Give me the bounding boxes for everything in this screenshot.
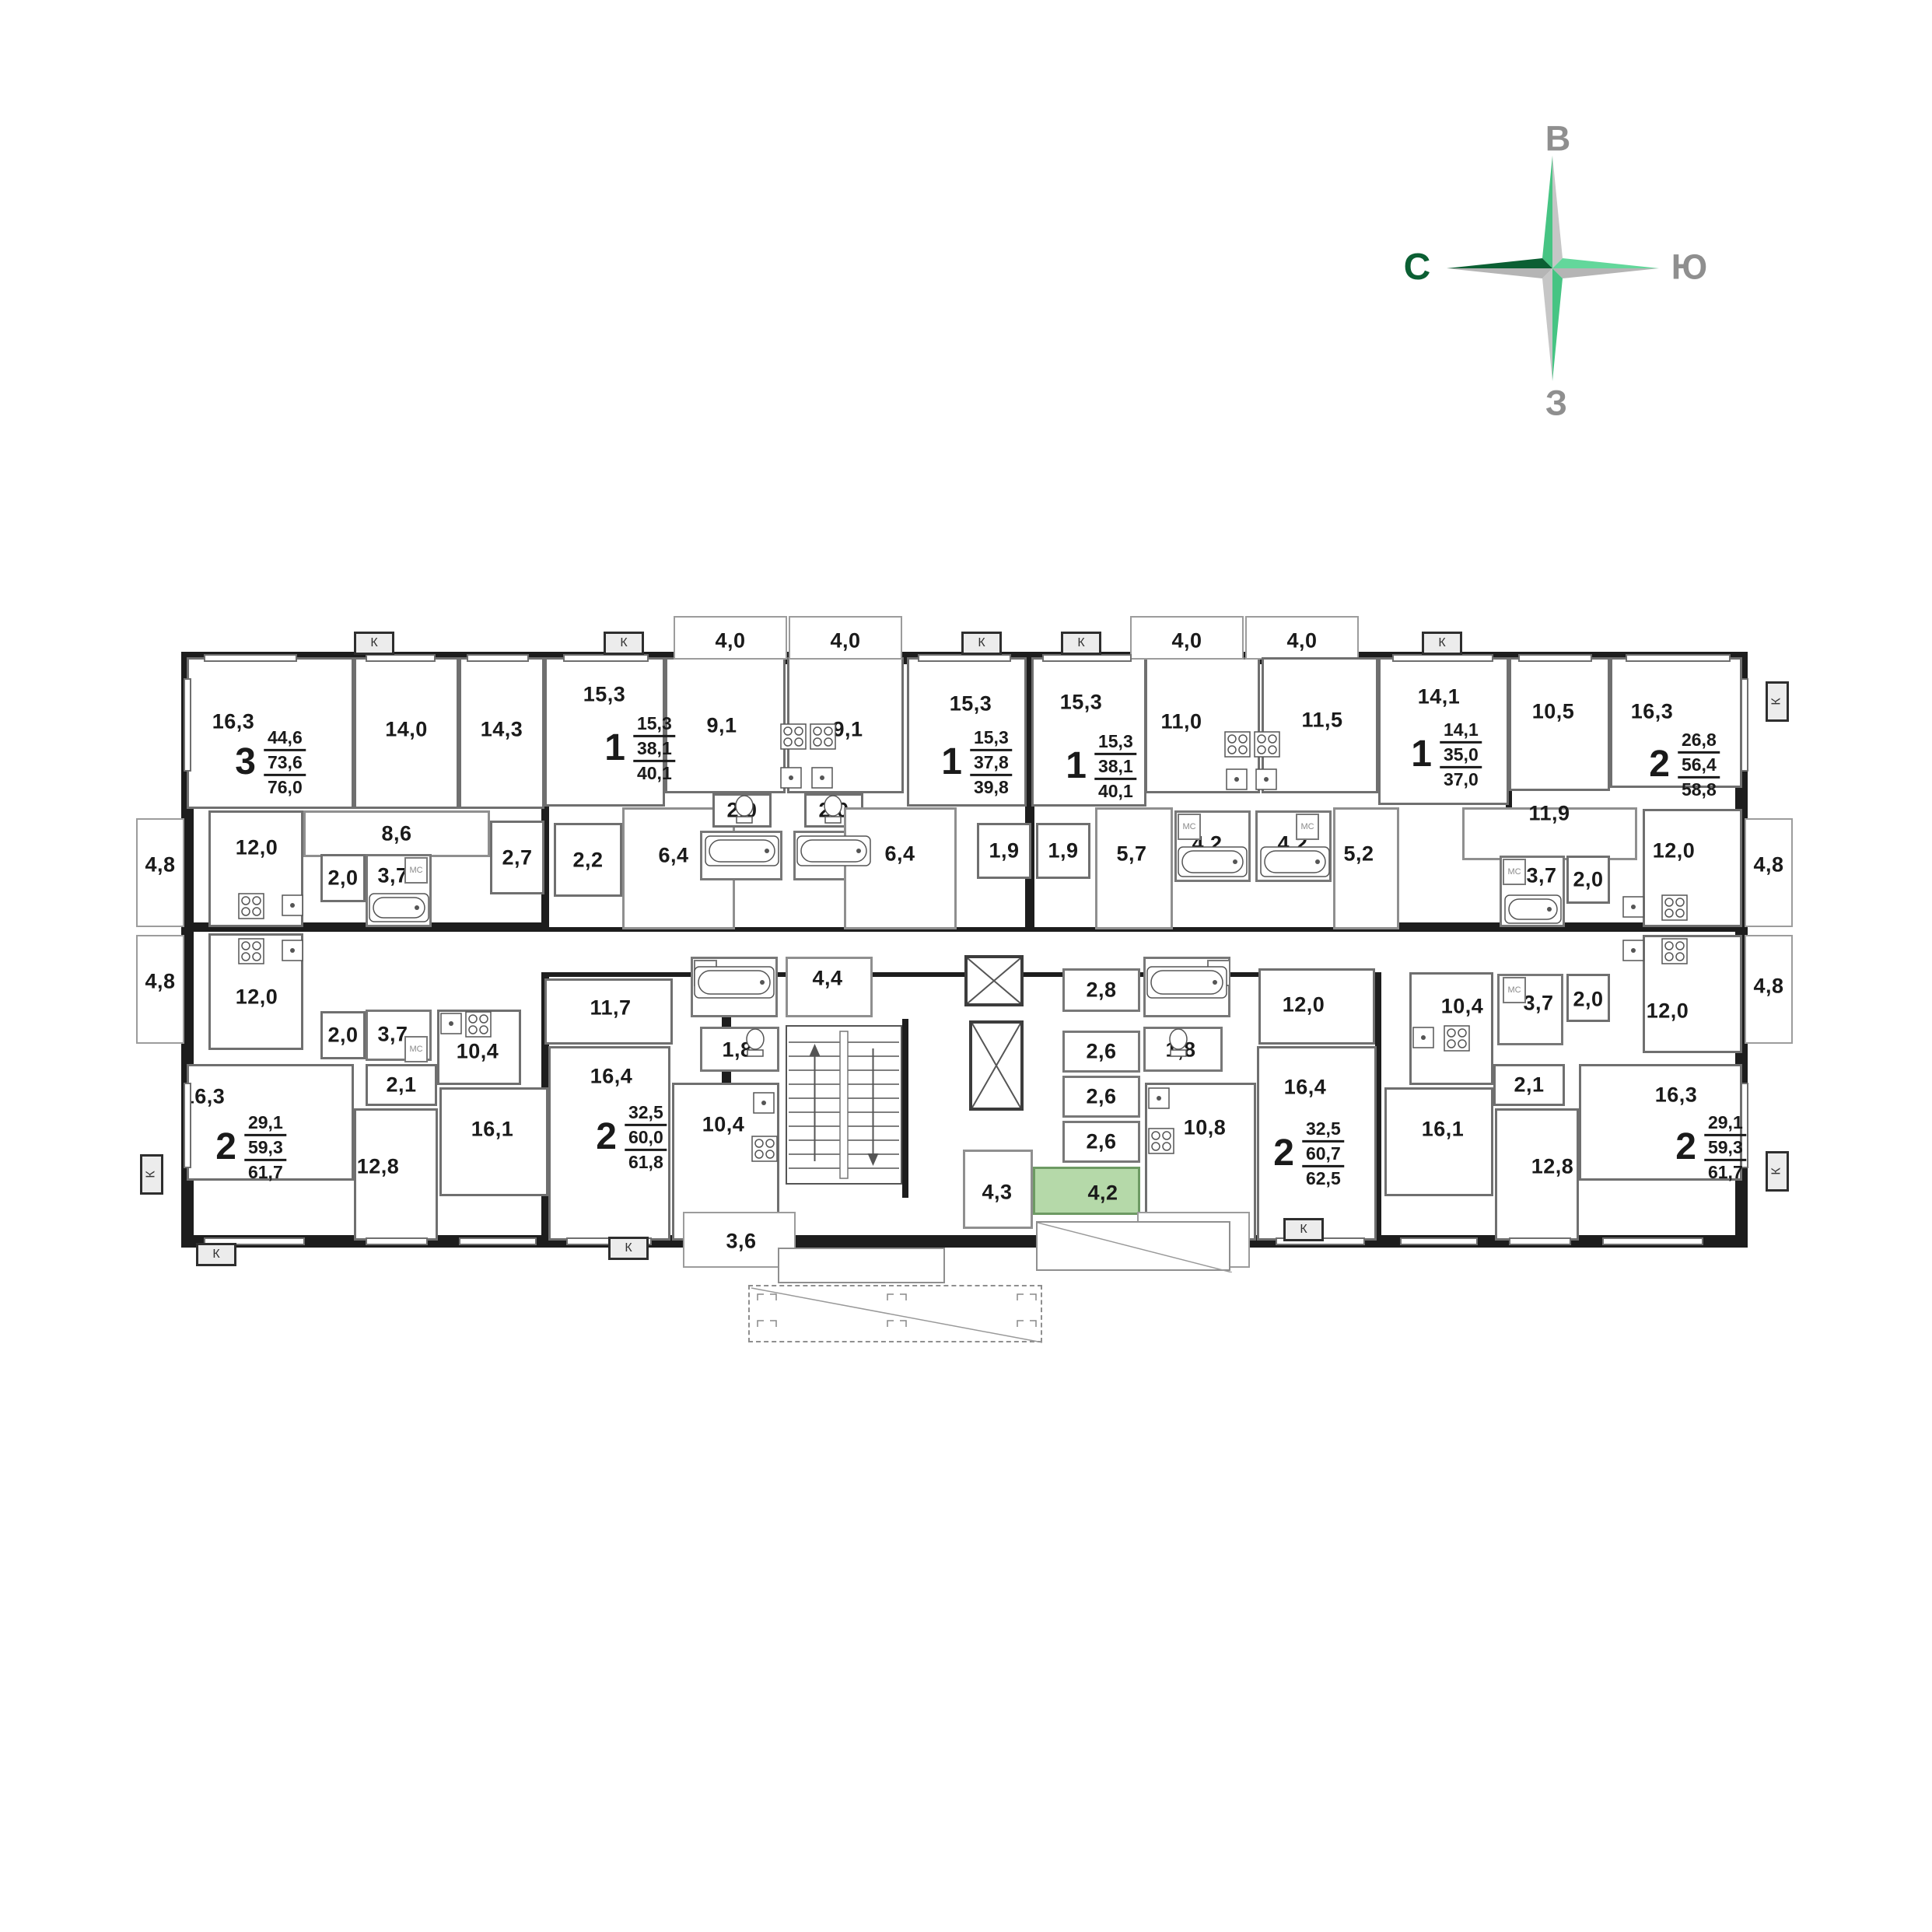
room-area-label: 2,7 <box>502 845 532 870</box>
bathtub-icon <box>1260 846 1330 877</box>
window <box>1392 654 1493 662</box>
apartment-room-count: 1 <box>1411 736 1432 773</box>
room-area-label: 11,5 <box>1301 709 1342 733</box>
apartment-area-value: 59,3 <box>244 1136 287 1161</box>
apartment-summary: 226,856,458,8 <box>1649 729 1720 800</box>
apartment-area-value: 40,1 <box>633 761 676 784</box>
apartment-area-value: 15,3 <box>633 712 676 737</box>
window <box>459 1237 537 1245</box>
apartment-area-value: 29,1 <box>244 1111 287 1136</box>
apartment-area-value: 15,3 <box>970 726 1013 751</box>
compass-east-label: В <box>1545 121 1571 156</box>
apartment-room-count: 1 <box>1066 747 1087 785</box>
room-area-label: 16,4 <box>1284 1076 1327 1100</box>
room-area-label: 2,0 <box>1573 868 1603 892</box>
washing-machine-box: МС <box>404 857 428 884</box>
sink-icon <box>811 767 833 789</box>
room-area-label: 3,7 <box>1523 992 1553 1016</box>
window <box>1042 654 1132 662</box>
room-area-label: 4,2 <box>1087 1181 1118 1206</box>
room-area-label: 10,5 <box>1532 700 1575 724</box>
stove-icon <box>1148 1128 1174 1154</box>
room-area-label: 4,8 <box>145 853 175 877</box>
room-area-label: 4,0 <box>715 629 745 653</box>
apartment-area-value: 32,5 <box>1302 1118 1345 1143</box>
room-area-label: 2,6 <box>1086 1040 1116 1064</box>
apartment-room-count: 2 <box>1273 1135 1294 1172</box>
room-area-label: 6,4 <box>658 844 688 868</box>
room-area-label: 10,4 <box>1441 995 1484 1019</box>
room-area-label: 10,4 <box>457 1040 499 1064</box>
room-area-label: 12,0 <box>236 836 278 860</box>
vent-shaft-box: К <box>354 632 394 655</box>
room-area-label: 14,0 <box>385 718 428 742</box>
vent-shaft-box: К <box>1283 1218 1324 1241</box>
vent-shaft-box: К <box>604 632 644 655</box>
window <box>1602 1237 1703 1245</box>
toilet-icon <box>823 795 843 824</box>
room-area-label: 2,8 <box>1086 978 1116 1003</box>
compass-rose: В Ю З С <box>1384 109 1742 443</box>
washing-machine-box: МС <box>1503 977 1526 1003</box>
stove-icon <box>1224 731 1251 758</box>
apartment-area-value: 60,0 <box>625 1126 667 1151</box>
room-area-label: 12,0 <box>1653 839 1696 863</box>
room-area-label: 12,8 <box>357 1155 400 1179</box>
apartment-room-count: 1 <box>941 744 962 781</box>
room-area-label: 11,9 <box>1528 802 1570 826</box>
apartment-area-value: 39,8 <box>970 775 1013 798</box>
apartment-summary: 115,338,140,1 <box>1066 730 1136 802</box>
elevator-shaft <box>969 1020 1024 1111</box>
toilet-icon <box>745 1028 765 1058</box>
apartment-room-count: 2 <box>1649 746 1670 783</box>
elevator-x-icon <box>972 1024 1020 1108</box>
vent-shaft-box: К <box>1422 632 1462 655</box>
apartment-summary: 344,673,676,0 <box>235 726 306 798</box>
apartment-area-value: 61,8 <box>625 1150 667 1173</box>
room-area-label: 2,0 <box>327 866 358 891</box>
stove-icon <box>810 723 836 750</box>
window <box>1741 678 1748 772</box>
room-area-label: 3,7 <box>377 1023 408 1047</box>
bathtub-icon <box>1146 966 1227 999</box>
washing-machine-box: МС <box>1503 859 1526 885</box>
window <box>204 654 297 662</box>
room <box>439 1087 548 1196</box>
room-area-label: 11,0 <box>1160 710 1202 734</box>
room-area-label: 2,1 <box>1514 1073 1544 1097</box>
vent-shaft-box: К <box>961 632 1002 655</box>
room <box>1643 809 1742 927</box>
washing-machine-box: МС <box>404 1036 428 1062</box>
room-area-label: 16,1 <box>1422 1118 1465 1142</box>
apartment-area-value: 14,1 <box>1440 719 1482 744</box>
window <box>467 654 529 662</box>
room-area-label: 2,0 <box>1573 988 1603 1012</box>
apartment-room-count: 3 <box>235 744 256 781</box>
room-area-label: 4,0 <box>1286 629 1317 653</box>
washing-machine-box: МС <box>1296 814 1319 840</box>
washing-machine-box: МС <box>1178 814 1201 840</box>
bathtub-icon <box>694 966 775 999</box>
apartment-area-value: 76,0 <box>264 775 306 798</box>
room-area-label: 12,0 <box>1647 999 1689 1024</box>
sink-icon <box>1226 768 1248 790</box>
apartment-area-value: 73,6 <box>264 751 306 776</box>
stove-icon <box>238 893 264 919</box>
apartment-summary: 115,338,140,1 <box>604 712 675 784</box>
room-area-label: 12,8 <box>1531 1155 1574 1179</box>
apartment-room-count: 2 <box>1675 1129 1696 1166</box>
room-area-label: 16,3 <box>1631 700 1674 724</box>
room-area-label: 4,4 <box>812 967 842 991</box>
wall-segment <box>902 1019 908 1198</box>
toilet-icon <box>1168 1028 1188 1058</box>
room-area-label: 5,2 <box>1343 842 1374 866</box>
apartment-area-value: 38,1 <box>1094 755 1137 780</box>
sink-icon <box>753 1092 775 1114</box>
stove-icon <box>751 1136 778 1162</box>
elevator-shaft <box>964 955 1024 1006</box>
apartment-area-value: 26,8 <box>1678 729 1720 754</box>
apartment-area-value: 38,1 <box>633 737 676 762</box>
apartment-area-value: 37,8 <box>970 751 1013 776</box>
window <box>563 654 649 662</box>
room-area-label: 8,6 <box>381 822 411 846</box>
stove-icon <box>465 1011 492 1038</box>
compass-north-label: С <box>1404 249 1431 286</box>
apartment-area-value: 58,8 <box>1678 778 1720 800</box>
room <box>1509 657 1610 791</box>
room-area-label: 3,7 <box>1526 864 1556 888</box>
window <box>184 1083 191 1168</box>
sink-icon <box>780 767 802 789</box>
sink-icon <box>282 940 303 961</box>
entrance-landing <box>778 1248 945 1283</box>
apartment-area-value: 40,1 <box>1094 779 1137 802</box>
room-area-label: 4,8 <box>145 970 175 994</box>
apartment-area-value: 60,7 <box>1302 1143 1345 1167</box>
sink-icon <box>282 894 303 916</box>
vent-shaft-box: К <box>1766 1151 1789 1192</box>
apartment-area-value: 61,7 <box>244 1160 287 1183</box>
window <box>1509 1237 1571 1245</box>
room-area-label: 10,8 <box>1184 1116 1227 1140</box>
vent-shaft-box: К <box>1061 632 1101 655</box>
room-area-label: 2,6 <box>1086 1130 1116 1154</box>
bathtub-icon <box>369 893 429 922</box>
apartment-summary: 232,560,762,5 <box>1273 1118 1344 1189</box>
room-area-label: 5,7 <box>1116 842 1146 866</box>
bathtub-icon <box>1504 894 1562 924</box>
room <box>1384 1087 1493 1196</box>
apartment-area-value: 29,1 <box>1704 1111 1747 1136</box>
window <box>184 678 191 772</box>
room-area-label: 9,1 <box>706 714 737 738</box>
compass-star-icon <box>1441 154 1664 383</box>
apartment-area-value: 59,3 <box>1704 1136 1747 1161</box>
apartment-summary: 115,337,839,8 <box>941 726 1012 798</box>
room-area-label: 3,6 <box>726 1230 756 1254</box>
bathtub-icon <box>705 835 779 866</box>
room-area-label: 12,0 <box>1283 993 1325 1017</box>
stove-icon <box>238 938 264 964</box>
room-area-label: 4,0 <box>830 629 860 653</box>
room-area-label: 2,1 <box>386 1073 416 1097</box>
room-area-label: 15,3 <box>583 683 626 707</box>
stove-icon <box>780 723 807 750</box>
apartment-area-value: 62,5 <box>1302 1167 1345 1189</box>
apartment-summary: 229,159,361,7 <box>215 1111 286 1183</box>
compass-west-label: З <box>1545 386 1567 421</box>
apartment-summary: 114,135,037,0 <box>1411 719 1482 790</box>
room <box>1333 807 1399 929</box>
window <box>1518 654 1592 662</box>
apartment-area-value: 35,0 <box>1440 744 1482 768</box>
sink-icon <box>1412 1027 1434 1048</box>
room-area-label: 12,0 <box>236 985 278 1010</box>
room-area-label: 16,1 <box>471 1118 514 1142</box>
apartment-summary: 229,159,361,7 <box>1675 1111 1746 1183</box>
room-area-label: 14,1 <box>1418 685 1461 709</box>
room-area-label: 16,4 <box>590 1065 633 1089</box>
stove-icon <box>1444 1025 1470 1052</box>
toilet-icon <box>734 795 754 824</box>
room-area-label: 11,7 <box>590 996 631 1020</box>
stairs <box>786 1025 902 1185</box>
room-area-label: 15,3 <box>1060 691 1103 715</box>
room <box>1643 935 1742 1053</box>
room-area-label: 2,2 <box>572 848 603 872</box>
apartment-summary: 232,560,061,8 <box>596 1101 667 1173</box>
sink-icon <box>1622 940 1644 961</box>
room-area-label: 4,8 <box>1753 853 1783 877</box>
vent-shaft-box: К <box>608 1237 649 1260</box>
stove-icon <box>1254 731 1280 758</box>
room-area-label: 4,3 <box>982 1181 1012 1205</box>
room-area-label: 14,3 <box>481 718 523 742</box>
room-area-label: 1,9 <box>989 839 1019 863</box>
sink-icon <box>440 1013 462 1034</box>
room-area-label: 4,0 <box>1171 629 1202 653</box>
elevator-x-icon <box>968 958 1020 1003</box>
room-area-label: 10,4 <box>702 1113 745 1137</box>
apartment-room-count: 1 <box>604 730 625 767</box>
vent-shaft-box: К <box>140 1154 163 1195</box>
apartment-area-value: 56,4 <box>1678 754 1720 779</box>
room-area-label: 2,6 <box>1086 1085 1116 1109</box>
apartment-area-value: 15,3 <box>1094 730 1137 755</box>
sink-icon <box>1622 896 1644 918</box>
stairs-icon <box>786 1025 902 1185</box>
room-area-label: 1,9 <box>1048 839 1078 863</box>
room-area-label: 9,1 <box>832 718 863 742</box>
entrance-porch <box>1036 1221 1230 1271</box>
room-area-label: 2,0 <box>327 1024 358 1048</box>
room-area-label: 3,7 <box>377 864 408 888</box>
stove-icon <box>1661 894 1688 921</box>
room-area-label: 15,3 <box>950 692 992 716</box>
vent-shaft-box: К <box>1766 681 1789 722</box>
sink-icon <box>1255 768 1277 790</box>
sink-icon <box>1148 1087 1170 1109</box>
room-area-label: 6,4 <box>884 842 915 866</box>
apartment-area-value: 44,6 <box>264 726 306 751</box>
bathtub-icon <box>796 835 871 866</box>
stove-icon <box>1661 938 1688 964</box>
room-area-label: 4,8 <box>1753 975 1783 999</box>
entrance-canopy <box>748 1285 1042 1342</box>
room-area-label: 16,3 <box>1655 1083 1698 1108</box>
wall-segment <box>544 972 1381 977</box>
window <box>1626 654 1731 662</box>
bathtub-icon <box>1178 846 1248 877</box>
window <box>1400 1237 1478 1245</box>
window <box>366 1237 428 1245</box>
apartment-room-count: 2 <box>215 1129 236 1166</box>
apartment-area-value: 61,7 <box>1704 1160 1747 1183</box>
window <box>366 654 436 662</box>
compass-south-label: Ю <box>1671 250 1707 285</box>
room <box>1095 807 1173 929</box>
apartment-area-value: 32,5 <box>625 1101 667 1126</box>
vent-shaft-box: К <box>196 1243 236 1266</box>
room <box>844 807 957 929</box>
apartment-room-count: 2 <box>596 1118 617 1156</box>
window <box>918 654 1011 662</box>
room-highlighted[interactable] <box>1033 1167 1140 1215</box>
apartment-area-value: 37,0 <box>1440 768 1482 790</box>
